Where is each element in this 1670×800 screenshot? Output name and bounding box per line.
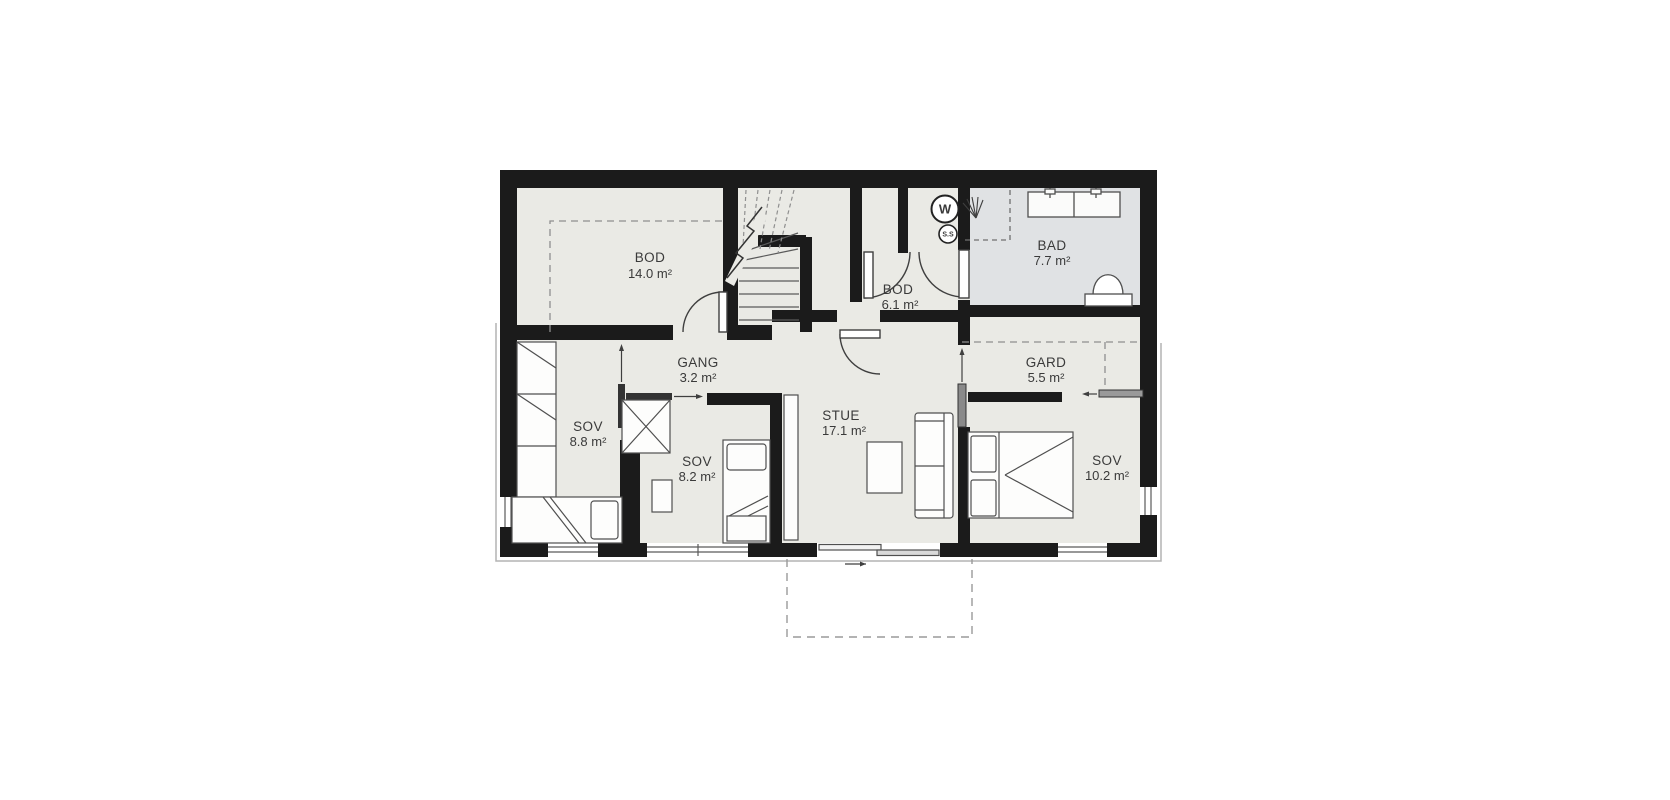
washer-label: W bbox=[939, 202, 952, 217]
sofa-stue bbox=[915, 413, 953, 518]
bed-sov88 bbox=[512, 497, 622, 543]
nightstand-sov82 bbox=[652, 480, 672, 512]
room-label-sov82: SOV 8.2 m² bbox=[679, 454, 717, 484]
coffee-table-stue bbox=[867, 442, 902, 493]
bed-sov102 bbox=[968, 432, 1073, 518]
svg-text:7.7 m²: 7.7 m² bbox=[1034, 253, 1072, 268]
window-right-sov102 bbox=[1140, 487, 1157, 515]
room-label-gard: GARD 5.5 m² bbox=[1026, 355, 1067, 385]
room-label-sov88: SOV 8.8 m² bbox=[570, 419, 608, 449]
svg-text:GARD: GARD bbox=[1026, 355, 1067, 370]
terrace-outline bbox=[787, 559, 972, 637]
svg-text:5.5 m²: 5.5 m² bbox=[1028, 370, 1066, 385]
svg-text:14.0 m²: 14.0 m² bbox=[628, 266, 673, 281]
svg-text:SOV: SOV bbox=[682, 454, 712, 469]
ss-label: S.S bbox=[942, 232, 954, 239]
svg-text:6.1 m²: 6.1 m² bbox=[882, 297, 920, 312]
wardrobe-sov82 bbox=[622, 400, 670, 453]
wardrobe-sov88 bbox=[517, 342, 556, 497]
bed-sov82 bbox=[723, 440, 770, 543]
svg-text:STUE: STUE bbox=[822, 408, 860, 423]
floor-plan-drawing: W S.S bbox=[0, 0, 1670, 800]
svg-text:SOV: SOV bbox=[1092, 453, 1122, 468]
room-label-gang: GANG 3.2 m² bbox=[677, 355, 718, 385]
svg-text:3.2 m²: 3.2 m² bbox=[680, 370, 718, 385]
terrace-sliding-door bbox=[817, 543, 940, 567]
svg-text:17.1 m²: 17.1 m² bbox=[822, 423, 867, 438]
svg-text:SOV: SOV bbox=[573, 419, 603, 434]
slide-direction-arrow bbox=[845, 562, 866, 567]
window-bottom-sov88 bbox=[548, 543, 598, 557]
svg-text:GANG: GANG bbox=[677, 355, 718, 370]
window-bottom-sov82 bbox=[647, 543, 748, 557]
window-bottom-sov102 bbox=[1058, 543, 1107, 557]
svg-text:8.8 m²: 8.8 m² bbox=[570, 434, 608, 449]
svg-text:BAD: BAD bbox=[1038, 238, 1067, 253]
svg-text:10.2 m²: 10.2 m² bbox=[1085, 468, 1130, 483]
svg-text:BOD: BOD bbox=[883, 282, 913, 297]
tv-bench-stue bbox=[784, 395, 798, 540]
vanity-double-sink bbox=[1028, 188, 1120, 217]
svg-text:BOD: BOD bbox=[635, 250, 665, 265]
room-label-bad: BAD 7.7 m² bbox=[1034, 238, 1072, 268]
svg-text:8.2 m²: 8.2 m² bbox=[679, 469, 717, 484]
floor-plan-page: W S.S bbox=[0, 0, 1670, 800]
